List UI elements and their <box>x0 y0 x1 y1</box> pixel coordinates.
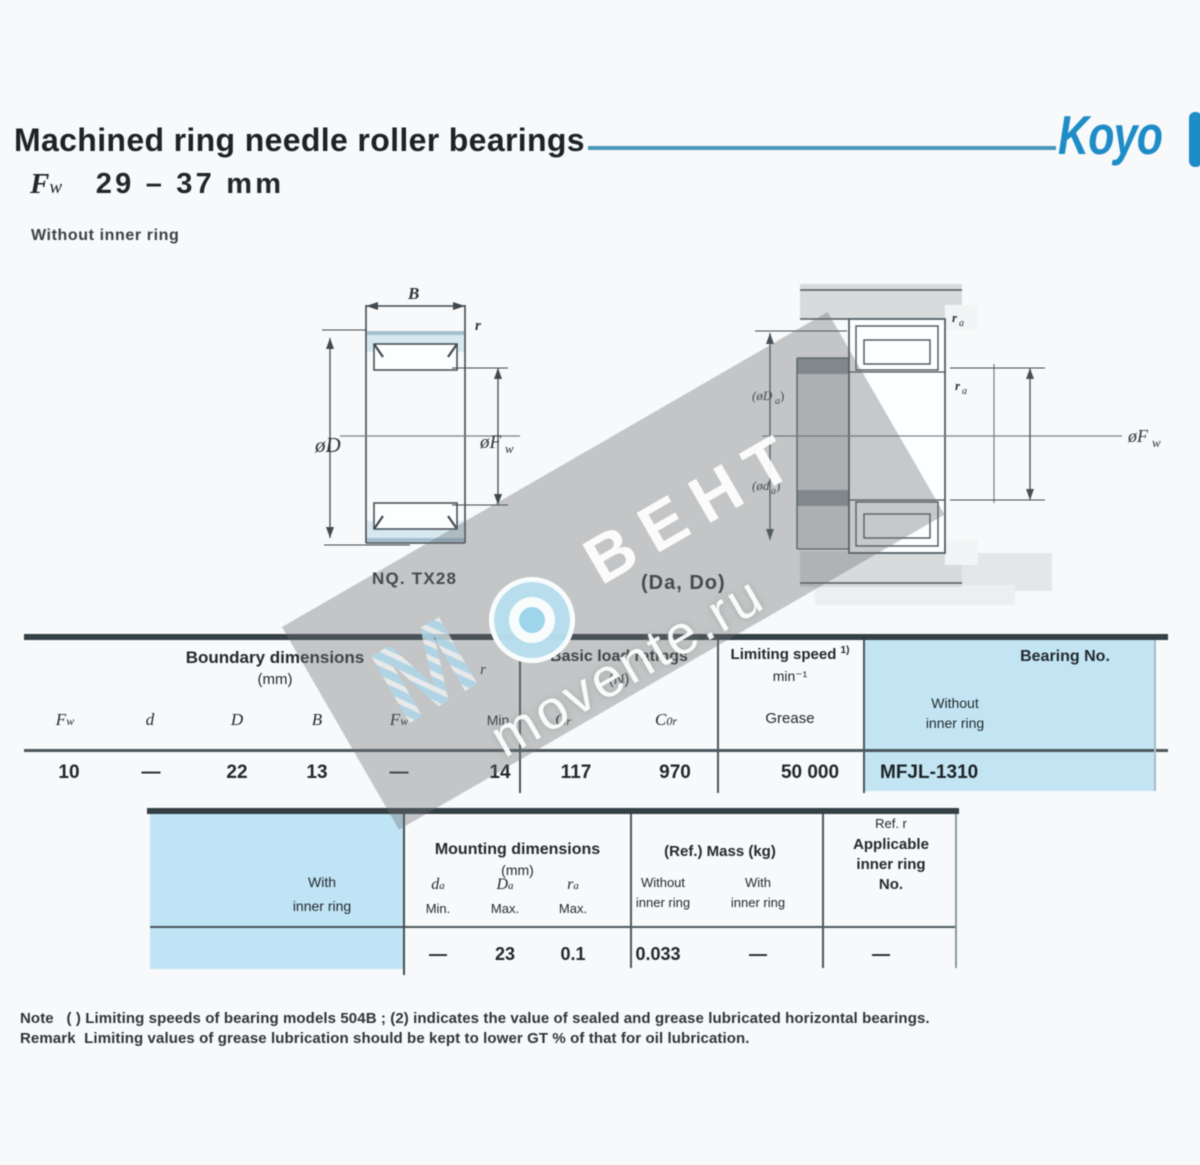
svg-text:B: B <box>407 284 419 303</box>
svg-text:øF: øF <box>1127 426 1149 446</box>
svg-text:a: a <box>962 386 967 397</box>
svg-text:r: r <box>475 318 481 334</box>
svg-text:w: w <box>505 441 514 456</box>
svg-text:w: w <box>1152 435 1161 450</box>
svg-text:øF: øF <box>479 432 502 453</box>
svg-text:r: r <box>955 378 961 393</box>
svg-text:a: a <box>959 318 964 329</box>
svg-text:øD: øD <box>314 433 341 457</box>
